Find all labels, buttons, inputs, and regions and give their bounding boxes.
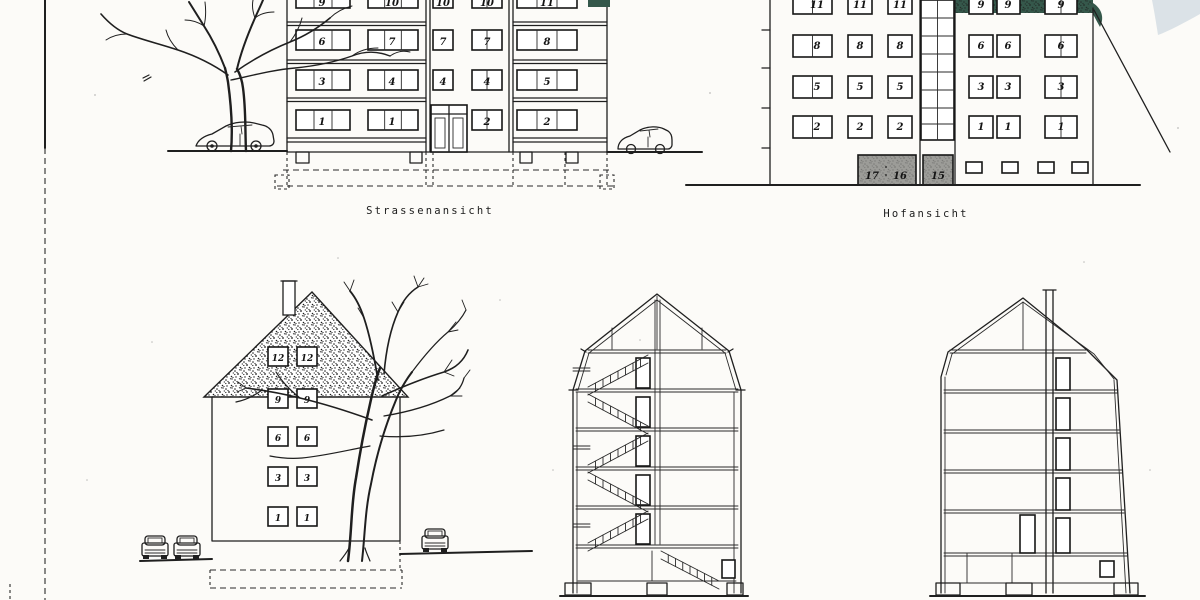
window: 9 <box>969 0 993 14</box>
window: 1 <box>1045 116 1077 138</box>
sheet-border <box>10 0 45 600</box>
window-number: 3 <box>1005 82 1012 93</box>
window: 6 <box>997 35 1020 57</box>
chimney-shaft <box>1043 290 1056 593</box>
hedge-hook <box>1088 3 1102 27</box>
window-number: 10 <box>480 0 494 9</box>
window: 10 <box>368 0 418 9</box>
window-number: 8 <box>857 41 864 52</box>
window: 9 <box>1045 0 1077 14</box>
window-number: 9 <box>319 0 326 9</box>
garage-number: 15 <box>931 171 945 182</box>
captions: Strassenansicht Hofansicht <box>366 205 969 220</box>
window: 5 <box>888 76 912 98</box>
window: 7 <box>368 30 418 50</box>
car-front-2 <box>174 536 200 559</box>
gable-elevation <box>140 281 532 588</box>
window-number: 9 <box>275 396 282 406</box>
window-number: 5 <box>814 82 821 93</box>
window-number: 3 <box>304 474 310 484</box>
window-number: 12 <box>301 354 314 364</box>
street-foundation <box>275 152 616 189</box>
window: 1 <box>296 110 350 130</box>
courtyard-view-caption: Hofansicht <box>883 208 968 220</box>
window-number: 9 <box>978 0 985 11</box>
window: 11 <box>848 0 872 14</box>
window: 3 <box>1045 76 1077 98</box>
window-number: 6 <box>319 37 326 48</box>
window: 7 <box>433 30 453 50</box>
window: 6 <box>1045 35 1077 57</box>
window: 10 <box>472 0 502 9</box>
window: 1 <box>268 507 288 526</box>
window-number: 1 <box>319 117 326 128</box>
roof-stipple <box>204 292 408 397</box>
window-number: 12 <box>272 354 285 364</box>
window-number: 1 <box>275 514 281 524</box>
window-number: 7 <box>484 37 491 48</box>
window-number: 8 <box>544 37 551 48</box>
garage-doors: 17 16 15 <box>858 155 953 185</box>
window: 3 <box>297 467 317 486</box>
window-number: 6 <box>304 434 311 444</box>
window: 11 <box>888 0 912 14</box>
window: 6 <box>969 35 993 57</box>
window-number: 1 <box>389 117 396 128</box>
window: 3 <box>997 76 1020 98</box>
floor-slabs <box>576 350 738 548</box>
window-number: 1 <box>1058 122 1065 133</box>
car-side-right <box>618 127 672 154</box>
car-side-left <box>196 122 274 151</box>
window: 9 <box>296 0 350 9</box>
window-number: 1 <box>978 122 985 133</box>
window-number: 1 <box>1005 122 1012 133</box>
window-number: 2 <box>813 122 821 133</box>
window: 4 <box>433 70 453 90</box>
window-number: 3 <box>319 77 326 88</box>
window-number: 6 <box>978 41 985 52</box>
ground-line-left <box>140 559 212 561</box>
window: 2 <box>793 116 832 138</box>
car-front-3 <box>422 529 448 552</box>
window: 4 <box>368 70 418 90</box>
cars <box>142 122 672 559</box>
window: 1 <box>368 110 418 130</box>
window-number: 10 <box>385 0 399 9</box>
window: 2 <box>517 110 577 130</box>
gable-foundation <box>210 570 402 588</box>
window-number: 9 <box>1005 0 1012 11</box>
window: 1 <box>997 116 1020 138</box>
courtyard-elevation: 17 16 15 <box>686 0 1170 185</box>
window-number: 3 <box>275 474 281 484</box>
section1-basement <box>560 551 748 596</box>
window-number: 11 <box>810 0 824 11</box>
window-number: 6 <box>1058 41 1065 52</box>
window: 10 <box>433 0 453 9</box>
window: 6 <box>268 427 288 446</box>
window-number: 6 <box>1005 41 1012 52</box>
window: 2 <box>848 116 872 138</box>
garage-number: 17 <box>865 171 879 182</box>
pen-mark <box>143 75 151 81</box>
garage-number: 16 <box>893 171 907 182</box>
room-doors <box>1020 358 1070 553</box>
spine-wall <box>655 300 660 544</box>
window: 11 <box>517 0 577 9</box>
window-number: 4 <box>440 77 447 88</box>
window-number: 2 <box>543 117 551 128</box>
window: 3 <box>268 467 288 486</box>
window: 8 <box>888 35 912 57</box>
window: 9 <box>997 0 1020 14</box>
window-number: 3 <box>978 82 985 93</box>
window-number: 11 <box>540 0 554 9</box>
window-number: 2 <box>896 122 904 133</box>
scanned-architectural-sheet: 17 16 15 Strassenansicht Hofansicht <box>0 0 1200 600</box>
windows-layer: 9101010116777834445112211111199988866655… <box>268 0 1077 526</box>
section2-basement <box>930 553 1145 596</box>
window: 4 <box>472 70 502 90</box>
window: 1 <box>297 507 317 526</box>
window-number: 5 <box>544 77 551 88</box>
ground-line-right <box>400 551 532 554</box>
window: 5 <box>517 70 577 90</box>
window-number: 11 <box>853 0 867 11</box>
window: 3 <box>296 70 350 90</box>
window: 8 <box>848 35 872 57</box>
window: 3 <box>969 76 993 98</box>
car-front-1 <box>142 536 168 559</box>
window-number: 8 <box>897 41 904 52</box>
window: 12 <box>268 347 288 366</box>
street-view-caption: Strassenansicht <box>366 205 494 217</box>
window: 8 <box>793 35 832 57</box>
stair-flights <box>588 355 719 589</box>
entrance-door <box>431 105 467 152</box>
window-number: 6 <box>275 434 282 444</box>
window-number: 4 <box>389 77 396 88</box>
window: 2 <box>472 110 502 130</box>
window: 6 <box>297 427 317 446</box>
cross-section-rooms <box>930 290 1145 596</box>
window-number: 11 <box>893 0 907 11</box>
chimney <box>281 281 297 315</box>
window: 8 <box>517 30 577 50</box>
window: 12 <box>297 347 317 366</box>
window: 5 <box>848 76 872 98</box>
window-number: 3 <box>1058 82 1065 93</box>
window: 2 <box>888 116 912 138</box>
architectural-drawing: 17 16 15 Strassenansicht Hofansicht <box>0 0 1200 600</box>
window-number: 7 <box>389 37 396 48</box>
cross-section-stairs <box>560 294 748 596</box>
stairwell-glazing <box>921 0 954 140</box>
hedge-blob <box>588 0 610 7</box>
window-number: 8 <box>814 41 821 52</box>
window-number: 2 <box>856 122 864 133</box>
window-number: 4 <box>484 77 491 88</box>
scan-smudge <box>1152 0 1200 35</box>
window-number: 10 <box>436 0 450 9</box>
window: 6 <box>296 30 350 50</box>
window: 5 <box>793 76 832 98</box>
window: 11 <box>793 0 832 14</box>
street-elevation <box>168 0 702 189</box>
window: 1 <box>969 116 993 138</box>
window: 7 <box>472 30 502 50</box>
window-number: 5 <box>897 82 904 93</box>
window-number: 1 <box>304 514 310 524</box>
window-number: 7 <box>440 37 447 48</box>
window-number: 2 <box>483 117 491 128</box>
window-number: 5 <box>857 82 864 93</box>
basement-windows <box>966 162 1088 173</box>
window-number: 9 <box>1058 0 1065 11</box>
